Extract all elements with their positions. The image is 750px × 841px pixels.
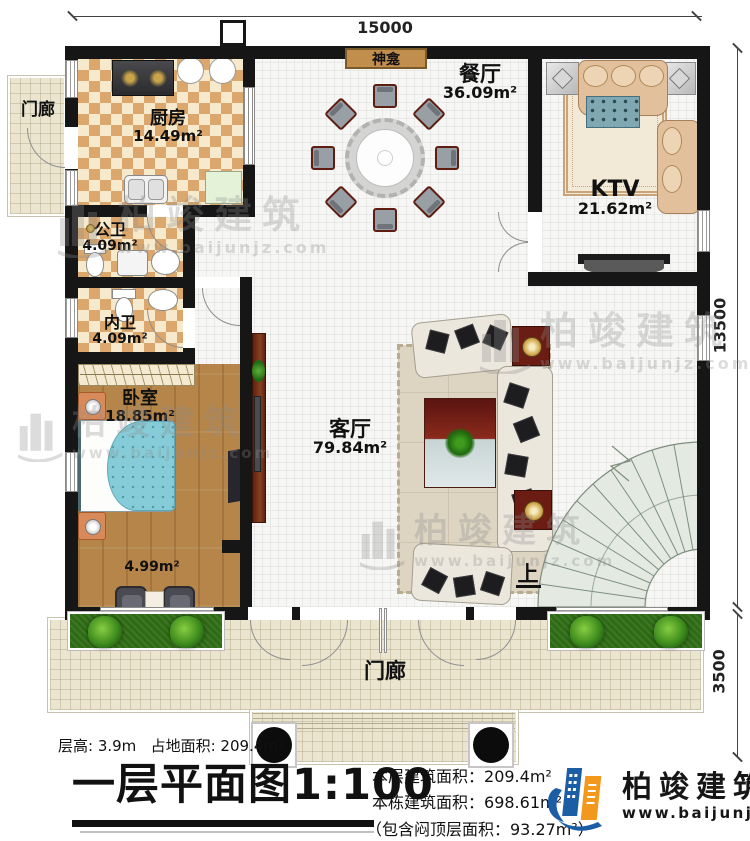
building-area-label: 本栋建筑面积： xyxy=(372,793,484,812)
burner xyxy=(149,69,167,87)
ktv-area: 21.62m² xyxy=(560,201,670,218)
living-name: 客厅 xyxy=(295,418,405,440)
wall-stub xyxy=(222,540,240,553)
window xyxy=(65,60,78,98)
floor-plan-canvas: 神龛 xyxy=(0,0,750,841)
window xyxy=(65,298,78,338)
door-opening xyxy=(474,607,516,620)
sofa-pillow xyxy=(454,324,480,350)
toilet-bowl xyxy=(86,252,104,277)
shrine-box: 神龛 xyxy=(345,48,427,69)
door-opening xyxy=(248,607,292,620)
nightstand-lamp xyxy=(85,519,101,535)
brand-website: www.baijunjz.com xyxy=(622,804,750,822)
wardrobe xyxy=(78,364,195,386)
window xyxy=(65,452,78,492)
door-opening xyxy=(183,308,195,348)
kitchen-cabinet xyxy=(205,171,242,204)
room-label-ktv: KTV 21.62m² xyxy=(560,178,670,218)
dining-name: 餐厅 xyxy=(425,63,535,85)
nightstand-lamp xyxy=(85,399,101,415)
sofa-pillow xyxy=(453,575,476,598)
wall-bath-right xyxy=(183,217,195,277)
brand-logo: 柏竣建筑 www.baijunjz.com xyxy=(548,760,750,832)
entry-door-leaf xyxy=(379,608,382,653)
porch-bottom-name: 门廊 xyxy=(330,660,440,682)
planter-left xyxy=(68,612,224,650)
room-label-public-bath: 公卫 4.09m² xyxy=(80,222,140,253)
kitchen-sliding-door xyxy=(243,87,255,165)
sofa-pillow xyxy=(425,330,449,354)
private-bath-area: 4.09m² xyxy=(90,332,150,347)
wall-bath-right xyxy=(183,288,195,308)
window xyxy=(65,170,78,206)
sofa-pillow xyxy=(504,453,528,477)
stats-left: 层高: 3.9m 占地面积: 209.4m² xyxy=(58,735,284,756)
private-bath-name: 内卫 xyxy=(90,315,150,332)
sofa-cushion xyxy=(639,65,664,87)
wall-bedroom-right xyxy=(240,277,252,607)
room-label-kitchen: 厨房 14.49m² xyxy=(118,110,218,145)
kitchen-area: 14.49m² xyxy=(118,129,218,145)
cabinet-plant xyxy=(252,360,265,382)
ktv-name: KTV xyxy=(560,178,670,201)
ktv-side-table xyxy=(546,62,579,95)
nightstand xyxy=(78,512,106,540)
sofa-cushion xyxy=(583,65,608,87)
kitchen-bowl xyxy=(177,57,204,84)
living-area: 79.84m² xyxy=(295,440,405,457)
wardrobe-rod xyxy=(80,374,193,375)
plan-title-text: 一层平面图 xyxy=(72,760,292,810)
bed xyxy=(78,420,174,512)
dim-right-value: 13500 xyxy=(711,296,730,356)
room-label-alcove: 4.99m² xyxy=(112,560,192,575)
planter-right xyxy=(548,612,704,650)
dining-table-center xyxy=(377,150,393,166)
title-underline-thin xyxy=(80,831,374,833)
watermark-building-icon xyxy=(18,406,64,462)
public-bath-name: 公卫 xyxy=(80,222,140,239)
bed-mattress xyxy=(107,421,175,511)
bedroom-area: 18.85m² xyxy=(100,409,180,425)
stairs-up-label: 上 xyxy=(508,563,548,588)
sofa-cushion xyxy=(611,65,636,87)
bush xyxy=(654,616,688,648)
dim-line-right xyxy=(737,48,738,608)
door-opening xyxy=(300,607,466,620)
land-area: 占地面积: 209.4m² xyxy=(151,737,284,755)
entry-door-leaf xyxy=(384,608,387,653)
floor-area-label: 本层建筑面积： xyxy=(372,767,484,786)
up-label: 上 xyxy=(516,563,541,588)
dining-area: 36.09m² xyxy=(425,85,535,102)
door-opening xyxy=(195,277,240,288)
sofa-cushion xyxy=(662,127,682,155)
bush xyxy=(88,616,122,648)
coffee-table-plant xyxy=(445,428,475,458)
brand-company: 柏竣建筑 xyxy=(622,771,750,804)
kitchen-bowl xyxy=(209,57,236,84)
room-label-porch-bottom: 门廊 xyxy=(330,660,440,682)
bush xyxy=(170,616,204,648)
ktv-coffee-table xyxy=(586,96,640,128)
sofa-pillow xyxy=(480,571,505,596)
chimney xyxy=(220,20,246,46)
floor-height: 层高: 3.9m xyxy=(58,737,136,755)
dining-chair xyxy=(373,84,397,108)
dining-chair xyxy=(311,146,335,170)
sink-basin xyxy=(148,179,164,200)
alcove-area: 4.99m² xyxy=(112,560,192,575)
sofa-bottom xyxy=(411,542,514,605)
door-opening xyxy=(147,205,183,217)
dim-line-top xyxy=(72,16,702,17)
room-label-bedroom: 卧室 18.85m² xyxy=(100,390,180,425)
title-underline xyxy=(72,820,374,827)
dim-bottom-right-value: 3500 xyxy=(710,647,729,697)
sofa-pillow xyxy=(421,567,448,594)
dining-chair xyxy=(373,208,397,232)
column xyxy=(468,722,514,768)
double-sink xyxy=(124,175,168,204)
window xyxy=(697,210,710,252)
room-label-private-bath: 内卫 4.09m² xyxy=(90,315,150,346)
washer xyxy=(117,250,148,276)
room-label-porch-top: 门廊 xyxy=(12,102,64,120)
window xyxy=(697,315,710,361)
basin xyxy=(151,249,180,275)
stove xyxy=(112,60,174,96)
burner xyxy=(121,69,139,87)
room-label-dining: 餐厅 36.09m² xyxy=(425,63,535,102)
floor-area-value: 209.4m² xyxy=(484,767,552,786)
wall-bedroom-top xyxy=(65,352,195,364)
bush xyxy=(570,616,604,648)
logo-building-icon xyxy=(548,760,614,832)
dim-top-value: 15000 xyxy=(340,18,430,37)
shrine-label: 神龛 xyxy=(372,49,400,69)
sofa-pillow xyxy=(503,382,529,408)
wall-bath-divider xyxy=(65,277,195,288)
curved-staircase xyxy=(528,432,710,609)
dining-chair xyxy=(435,146,459,170)
room-label-living: 客厅 79.84m² xyxy=(295,418,405,457)
door-opening xyxy=(65,127,78,169)
wall-ktv-bottom xyxy=(528,272,710,286)
sofa-pillow xyxy=(482,324,508,350)
dim-line-bottom-right xyxy=(737,614,738,758)
public-bath-area: 4.09m² xyxy=(80,239,140,254)
door-opening xyxy=(528,212,542,272)
side-table-lamp xyxy=(512,326,550,366)
table-inlay xyxy=(669,68,690,89)
living-tv xyxy=(254,396,261,472)
sink-basin xyxy=(128,179,145,200)
porch-top-name: 门廊 xyxy=(12,102,64,120)
table-inlay xyxy=(552,68,573,89)
